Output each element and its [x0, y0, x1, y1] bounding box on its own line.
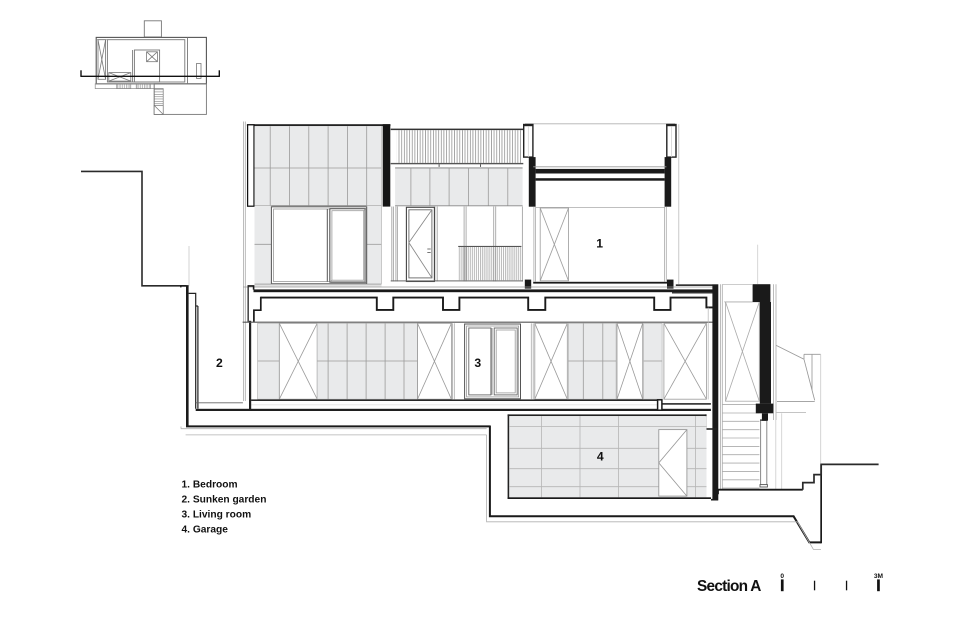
svg-text:3M: 3M: [874, 573, 884, 580]
svg-text:4: 4: [597, 450, 604, 464]
svg-text:2. Sunken garden: 2. Sunken garden: [182, 495, 267, 506]
svg-text:2: 2: [216, 356, 223, 370]
svg-text:4. Garage: 4. Garage: [182, 525, 229, 536]
svg-text:3: 3: [474, 356, 481, 370]
svg-text:3. Living room: 3. Living room: [182, 510, 252, 521]
svg-text:1. Bedroom: 1. Bedroom: [182, 480, 238, 491]
svg-text:Section A: Section A: [697, 578, 761, 595]
svg-text:1: 1: [596, 236, 603, 250]
svg-text:0: 0: [780, 573, 784, 580]
